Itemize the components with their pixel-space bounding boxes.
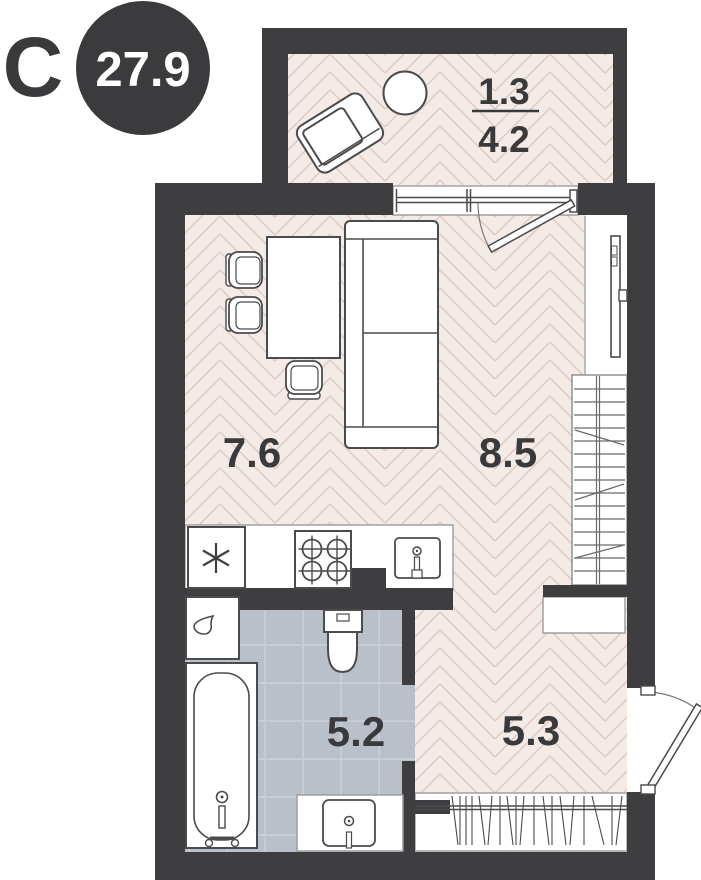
wall-segment [155, 183, 393, 215]
hallway-area-label: 5.3 [502, 707, 560, 754]
chair [226, 252, 262, 288]
door-jamb [641, 785, 655, 794]
balcony-round-table [384, 72, 427, 115]
wall-segment [403, 800, 450, 814]
balcony-total-area-label: 4.2 [478, 119, 529, 160]
door-jamb [641, 686, 655, 695]
stove [295, 531, 351, 588]
vanity-sink [297, 795, 403, 851]
living-room-area-label: 8.5 [479, 429, 537, 476]
wall-segment [613, 28, 627, 185]
wall-segment [627, 183, 655, 688]
balcony-living-area-label: 1.3 [478, 71, 529, 112]
sofa [345, 221, 438, 448]
wall-segment [155, 852, 655, 880]
kitchen-sink [395, 538, 440, 578]
hall-cabinet [543, 597, 625, 633]
chair [226, 297, 262, 333]
wall-segment [627, 792, 655, 880]
wall-segment [155, 183, 185, 880]
bathroom-area-label: 5.2 [327, 708, 385, 755]
floor-plan: С 27.9 1.3 4.2 7.6 8.5 5.2 5.3 [0, 0, 701, 880]
north-indicator: С [3, 20, 64, 114]
washing-machine [186, 597, 239, 659]
balcony-window-band [393, 186, 578, 215]
desk-table [267, 237, 340, 358]
wall-segment [262, 28, 288, 185]
total-area-value: 27.9 [95, 43, 190, 97]
wall-segment [402, 610, 415, 685]
wall-segment [543, 585, 627, 597]
floor-plan-svg: С 27.9 1.3 4.2 7.6 8.5 5.2 5.3 [0, 0, 701, 880]
wall-segment [262, 28, 627, 54]
bathtub [186, 663, 257, 848]
chair [286, 361, 322, 399]
kitchen-area-label: 7.6 [223, 429, 281, 476]
kitchen-duct [350, 568, 386, 590]
